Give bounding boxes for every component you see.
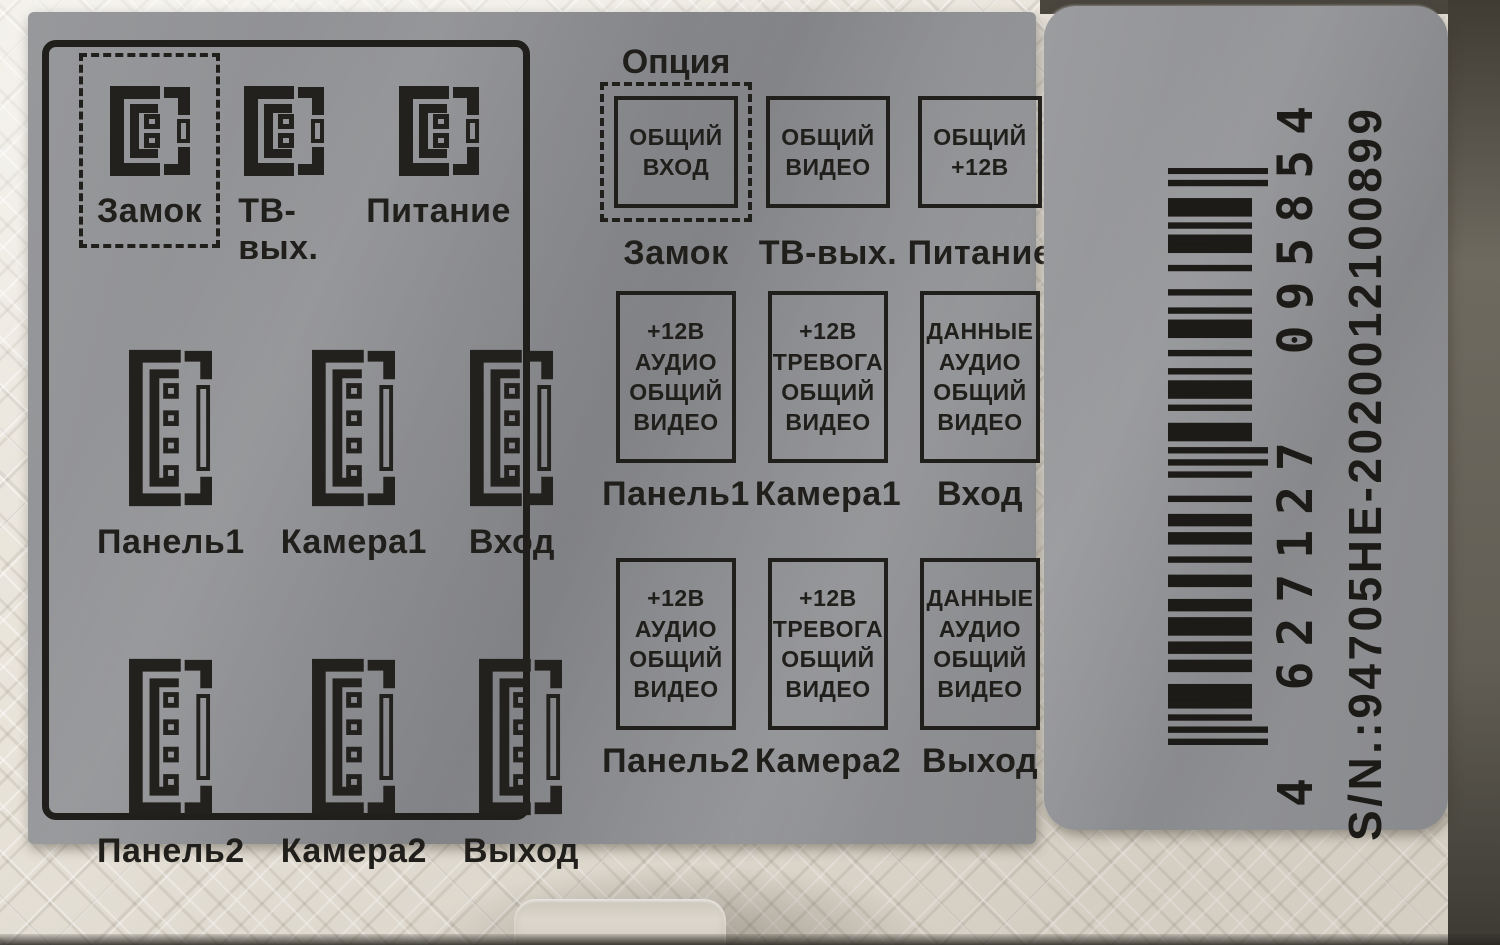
serial-number: S/N.:94705HE-2020012100899 bbox=[1338, 63, 1392, 841]
connector-panel2: Панель2 bbox=[79, 625, 263, 888]
pinout-tv-out: ОБЩИЙ ВИДЕО ТВ-вых. bbox=[752, 82, 904, 273]
pin-box: ДАННЫЕ АУДИО ОБЩИЙ ВИДЕО bbox=[920, 291, 1040, 463]
pin-names: ОБЩИЙ ВХОД bbox=[629, 122, 722, 183]
pin-names: +12В АУДИО ОБЩИЙ ВИДЕО bbox=[629, 316, 722, 437]
pinout-row: +12В АУДИО ОБЩИЙ ВИДЕО Панель2 +12В ТРЕВ… bbox=[600, 558, 1056, 781]
pinout-input: ДАННЫЕ АУДИО ОБЩИЙ ВИДЕО Вход bbox=[920, 291, 1040, 514]
connector-row: Панель2 Камера2 Выход bbox=[79, 625, 523, 888]
pinout-label: Камера2 bbox=[755, 742, 901, 781]
pinout-lock: ОБЩИЙ ВХОД Замок bbox=[600, 82, 752, 273]
connector-row: Замок ТВ-вых. Питание bbox=[79, 53, 523, 286]
pinout-label: ТВ-вых. bbox=[759, 234, 897, 273]
connector-4pin-icon bbox=[122, 346, 220, 510]
device-back-photo: Замок ТВ-вых. Питание Панель1 bbox=[0, 0, 1500, 945]
connector-label: Замок bbox=[97, 193, 202, 230]
pin-box: ДАННЫЕ АУДИО ОБЩИЙ ВИДЕО bbox=[920, 558, 1040, 730]
pinout-label: Панель1 bbox=[602, 475, 750, 514]
pin-names: +12В АУДИО ОБЩИЙ ВИДЕО bbox=[629, 583, 722, 704]
connector-power: Питание bbox=[348, 53, 529, 248]
pin-box: +12В ТРЕВОГА ОБЩИЙ ВИДЕО bbox=[768, 558, 888, 730]
pin-names: ОБЩИЙ +12В bbox=[933, 122, 1026, 183]
connector-2pin-icon bbox=[238, 83, 330, 179]
bottom-edge-shadow bbox=[0, 934, 1500, 945]
ean-digit-group: 095854 bbox=[1268, 91, 1324, 354]
pin-box: ОБЩИЙ +12В bbox=[918, 96, 1042, 208]
connector-2pin-icon bbox=[393, 83, 485, 179]
pinout-label: Панель2 bbox=[602, 742, 750, 781]
pinout-power: ОБЩИЙ +12В Питание bbox=[904, 82, 1056, 273]
pin-box: ОБЩИЙ ВИДЕО bbox=[766, 96, 890, 208]
connector-label: Питание bbox=[366, 193, 511, 230]
pin-box: +12В ТРЕВОГА ОБЩИЙ ВИДЕО bbox=[768, 291, 888, 463]
connector-label: Панель2 bbox=[97, 833, 245, 870]
connector-output: Выход bbox=[445, 625, 597, 888]
barcode-rotated-block: 4 627127 095854 S/N.:94705HE-20200121008… bbox=[1168, 63, 1420, 843]
right-edge-shadow bbox=[1448, 0, 1500, 945]
connector-4pin-icon bbox=[463, 346, 561, 510]
pin-names: ДАННЫЕ АУДИО ОБЩИЙ ВИДЕО bbox=[926, 316, 1033, 437]
pin-names: +12В ТРЕВОГА ОБЩИЙ ВИДЕО bbox=[773, 583, 883, 704]
connector-4pin-icon bbox=[305, 346, 403, 510]
connector-4pin-icon bbox=[305, 655, 403, 819]
pinout-panel1: +12В АУДИО ОБЩИЙ ВИДЕО Панель1 bbox=[602, 291, 750, 514]
pin-box: ОБЩИЙ ВХОД bbox=[614, 96, 738, 208]
pinout-row: ОБЩИЙ ВХОД Замок ОБЩИЙ ВИДЕО ТВ-вых. ОБЩ… bbox=[600, 82, 1056, 273]
pinout-camera1: +12В ТРЕВОГА ОБЩИЙ ВИДЕО Камера1 bbox=[755, 291, 901, 514]
connector-label: Выход bbox=[463, 833, 579, 870]
pinout-label: Вход bbox=[937, 475, 1023, 514]
connector-label: Вход bbox=[469, 524, 555, 561]
connector-label: Панель1 bbox=[97, 524, 245, 561]
connector-input: Вход bbox=[445, 316, 579, 579]
connector-4pin-icon bbox=[472, 655, 570, 819]
connector-label: ТВ-вых. bbox=[238, 193, 330, 268]
ean-digit-group: 4 bbox=[1268, 763, 1324, 807]
connector-panel1: Панель1 bbox=[79, 316, 263, 579]
pin-box: +12В АУДИО ОБЩИЙ ВИДЕО bbox=[616, 558, 736, 730]
pinout-camera2: +12В ТРЕВОГА ОБЩИЙ ВИДЕО Камера2 bbox=[755, 558, 901, 781]
optional-dashed-outline: ОБЩИЙ ВХОД bbox=[600, 82, 752, 222]
connector-2pin-icon bbox=[104, 83, 196, 179]
pin-box: +12В АУДИО ОБЩИЙ ВИДЕО bbox=[616, 291, 736, 463]
pinout-label: Питание bbox=[908, 234, 1053, 273]
connector-camera1: Камера1 bbox=[263, 316, 445, 579]
ean-digits: 4 627127 095854 bbox=[1268, 91, 1324, 807]
connector-label: Камера1 bbox=[281, 524, 427, 561]
pinout-label: Замок bbox=[623, 234, 728, 273]
pin-names: +12В ТРЕВОГА ОБЩИЙ ВИДЕО bbox=[773, 316, 883, 437]
pinout-panel: Опция ОБЩИЙ ВХОД Замок ОБЩИЙ ВИДЕО ТВ-вы… bbox=[600, 42, 1056, 781]
wiring-label-sticker: Замок ТВ-вых. Питание Панель1 bbox=[28, 12, 1036, 844]
option-header: Опция bbox=[600, 42, 752, 82]
connector-camera2: Камера2 bbox=[263, 625, 445, 888]
connector-lock: Замок bbox=[79, 53, 220, 248]
ean-digit-group: 627127 bbox=[1268, 427, 1324, 690]
connector-4pin-icon bbox=[122, 655, 220, 819]
connector-tv-out: ТВ-вых. bbox=[220, 53, 348, 286]
pinout-label: Камера1 bbox=[755, 475, 901, 514]
connector-diagram-frame: Замок ТВ-вых. Питание Панель1 bbox=[42, 40, 530, 820]
connector-label: Камера2 bbox=[281, 833, 427, 870]
connector-row: Панель1 Камера1 Вход bbox=[79, 316, 523, 579]
ean-barcode bbox=[1168, 168, 1268, 745]
connector-rows: Замок ТВ-вых. Питание Панель1 bbox=[49, 47, 523, 889]
pin-names: ОБЩИЙ ВИДЕО bbox=[781, 122, 874, 183]
pinout-panel2: +12В АУДИО ОБЩИЙ ВИДЕО Панель2 bbox=[602, 558, 750, 781]
pinout-label: Выход bbox=[922, 742, 1038, 781]
pin-names: ДАННЫЕ АУДИО ОБЩИЙ ВИДЕО bbox=[926, 583, 1033, 704]
pinout-output: ДАННЫЕ АУДИО ОБЩИЙ ВИДЕО Выход bbox=[920, 558, 1040, 781]
pinout-row: +12В АУДИО ОБЩИЙ ВИДЕО Панель1 +12В ТРЕВ… bbox=[600, 291, 1056, 514]
